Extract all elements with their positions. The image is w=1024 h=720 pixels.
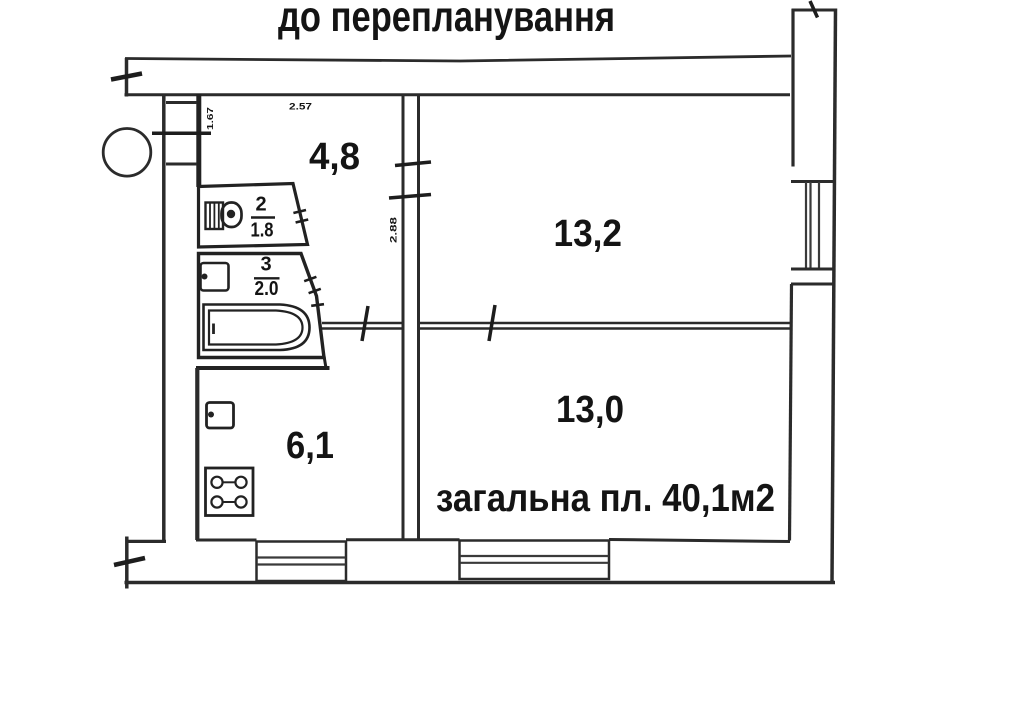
svg-text:13,2: 13,2 — [554, 213, 623, 255]
svg-text:2: 2 — [256, 194, 267, 216]
svg-text:4,8: 4,8 — [309, 136, 360, 178]
svg-text:13,0: 13,0 — [556, 389, 624, 431]
svg-text:до перепланування: до перепланування — [278, 0, 615, 41]
svg-text:1.8: 1.8 — [251, 220, 274, 242]
svg-text:загальна пл. 40,1м2: загальна пл. 40,1м2 — [436, 477, 775, 520]
svg-text:2.57: 2.57 — [289, 102, 312, 113]
svg-text:1.67: 1.67 — [205, 107, 215, 130]
svg-text:6,1: 6,1 — [286, 425, 334, 467]
svg-text:2.0: 2.0 — [255, 278, 279, 300]
svg-text:2.88: 2.88 — [389, 217, 400, 243]
svg-text:3: 3 — [261, 254, 272, 276]
